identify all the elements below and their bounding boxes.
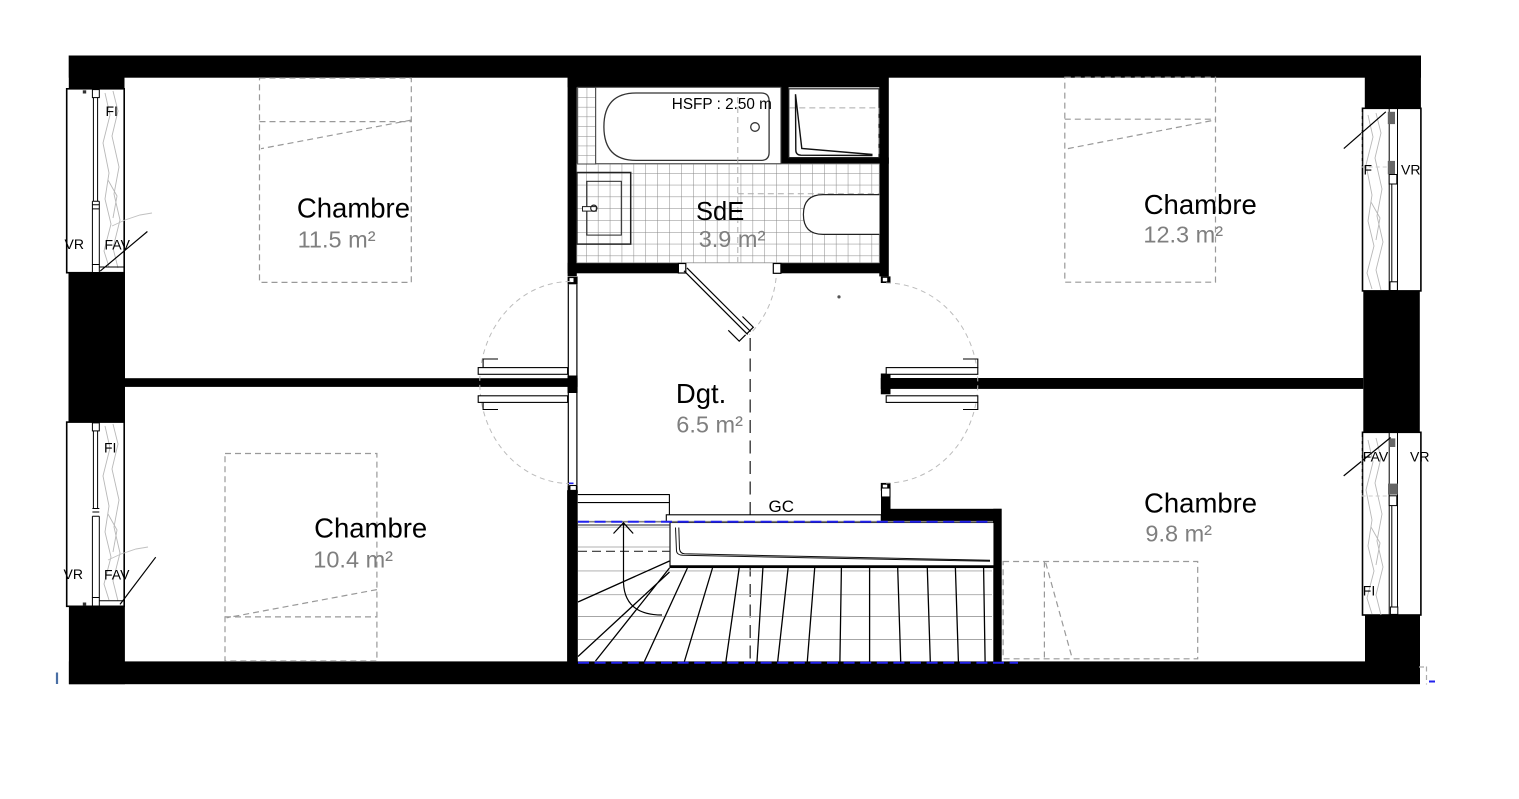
svg-text:FAV: FAV bbox=[105, 237, 131, 253]
svg-text:VR: VR bbox=[1410, 449, 1429, 465]
svg-text:FAV: FAV bbox=[1363, 449, 1389, 465]
svg-text:VR: VR bbox=[1401, 162, 1420, 178]
svg-text:FI: FI bbox=[104, 440, 116, 456]
svg-text:Chambre: Chambre bbox=[1144, 488, 1257, 519]
svg-text:FI: FI bbox=[106, 103, 118, 119]
svg-text:3.9 m²: 3.9 m² bbox=[699, 226, 766, 252]
svg-text:VR: VR bbox=[64, 566, 83, 582]
svg-text:Chambre: Chambre bbox=[314, 513, 427, 544]
svg-text:VR: VR bbox=[65, 236, 84, 252]
svg-text:9.8 m²: 9.8 m² bbox=[1145, 521, 1212, 547]
svg-text:FI: FI bbox=[1363, 583, 1375, 599]
svg-text:10.4 m²: 10.4 m² bbox=[313, 547, 393, 573]
svg-text:12.3 m²: 12.3 m² bbox=[1143, 222, 1223, 248]
svg-text:6.5 m²: 6.5 m² bbox=[676, 412, 743, 438]
svg-text:HSFP : 2.50 m: HSFP : 2.50 m bbox=[672, 96, 772, 113]
svg-text:GC: GC bbox=[769, 497, 795, 516]
svg-text:Dgt.: Dgt. bbox=[676, 378, 726, 409]
svg-text:FAV: FAV bbox=[104, 567, 130, 583]
svg-text:F: F bbox=[1364, 162, 1373, 178]
svg-text:SdE: SdE bbox=[696, 198, 744, 226]
svg-text:Chambre: Chambre bbox=[297, 193, 410, 224]
svg-text:Chambre: Chambre bbox=[1144, 189, 1257, 220]
svg-text:11.5 m²: 11.5 m² bbox=[298, 227, 376, 253]
